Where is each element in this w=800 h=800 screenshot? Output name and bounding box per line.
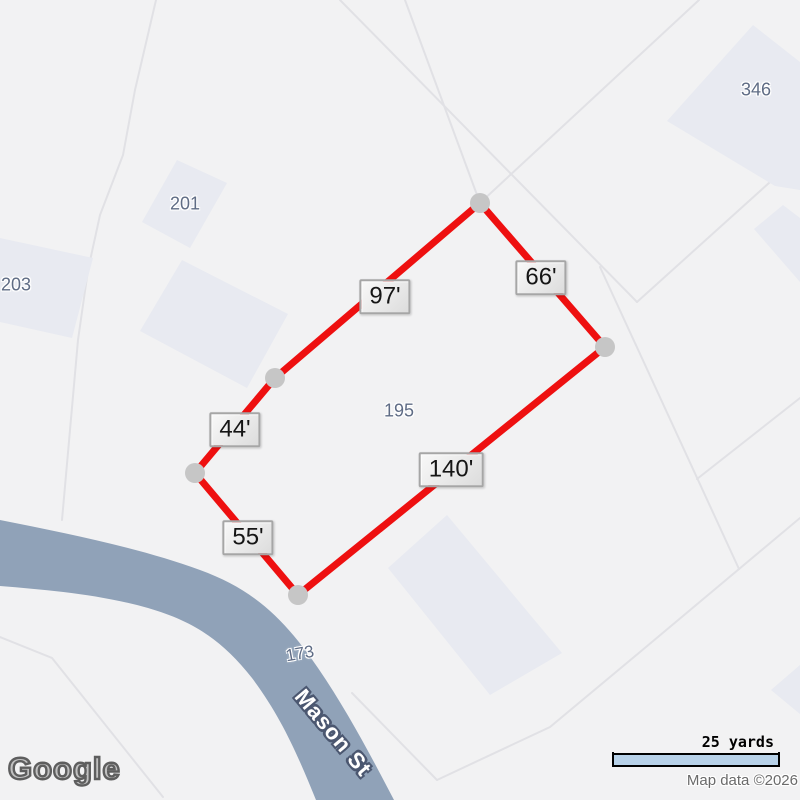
parcel-line (600, 267, 739, 569)
building (771, 665, 800, 714)
vertex-handle[interactable] (185, 463, 205, 483)
parcel-number-195: 195 (384, 401, 414, 422)
building (667, 25, 800, 190)
vertex-handle[interactable] (265, 368, 285, 388)
map-attribution: Map data ©2026 (687, 772, 798, 789)
scale-label: 25 yards (612, 733, 780, 751)
scale-bar-caps (612, 752, 780, 767)
map-scale: 25 yards (612, 733, 780, 767)
parcel-line (697, 398, 800, 479)
measurement-label-44: 44' (209, 412, 260, 447)
measurement-label-55: 55' (222, 520, 273, 555)
vertex-handle[interactable] (470, 193, 490, 213)
parcel-line (480, 0, 699, 203)
vertex-handle[interactable] (595, 337, 615, 357)
parcel-number-201: 201 (170, 194, 200, 215)
building (754, 205, 800, 282)
map-canvas[interactable]: 97' 66' 44' 140' 55' 346 201 203 195 173… (0, 0, 800, 800)
measurement-label-97: 97' (359, 279, 410, 314)
building (140, 260, 288, 388)
scale-bar (614, 753, 778, 767)
parcel-number-346: 346 (741, 80, 771, 101)
parcel-line (340, 0, 637, 302)
vertex-handle[interactable] (288, 585, 308, 605)
building (388, 515, 562, 695)
measurement-label-140: 140' (419, 452, 484, 487)
google-logo[interactable]: Google (8, 751, 121, 787)
measurement-label-66: 66' (515, 260, 566, 295)
building-footprints (0, 25, 800, 714)
parcel-line (405, 0, 480, 203)
parcel-number-203: 203 (1, 275, 31, 296)
